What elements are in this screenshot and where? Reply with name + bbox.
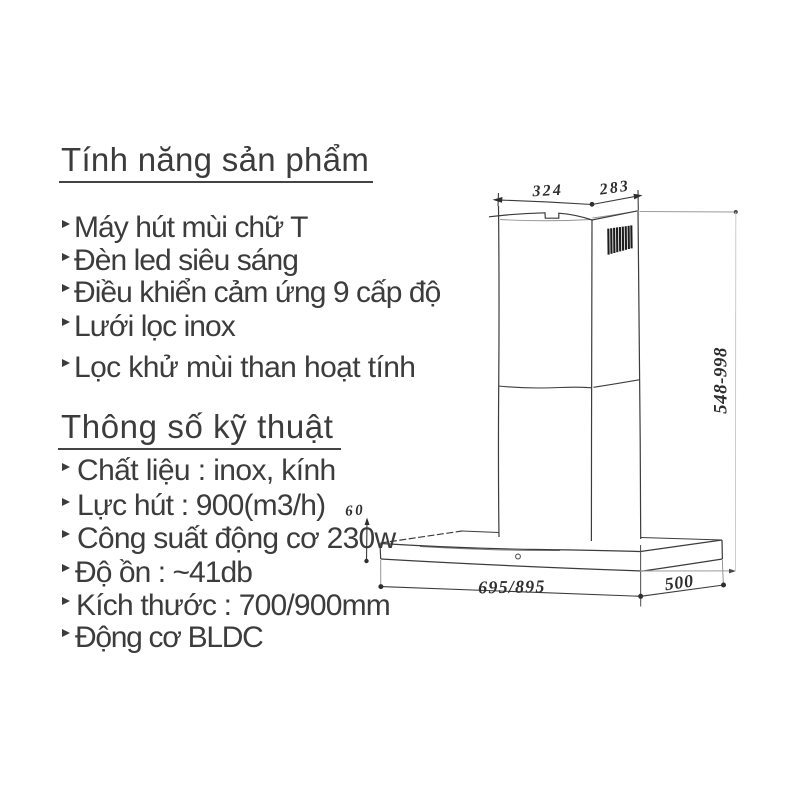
svg-text:500: 500 <box>663 570 695 594</box>
svg-text:548-998: 548-998 <box>711 347 732 414</box>
svg-text:60: 60 <box>345 502 366 519</box>
svg-text:324: 324 <box>531 182 563 201</box>
svg-text:283: 283 <box>598 177 632 198</box>
svg-text:695/895: 695/895 <box>478 576 546 597</box>
